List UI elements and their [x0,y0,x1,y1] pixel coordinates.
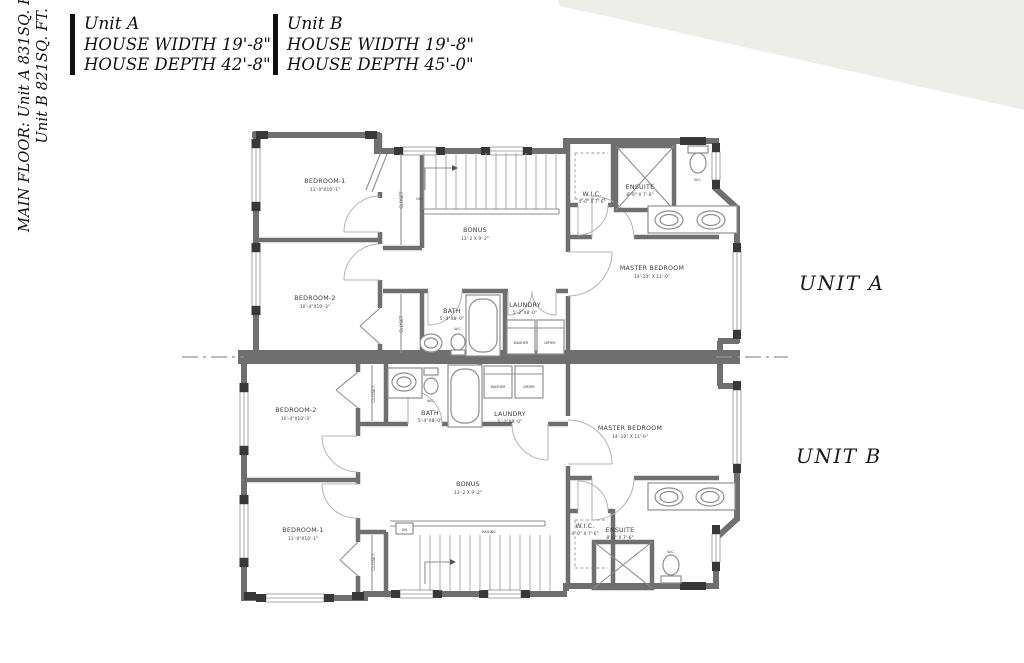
room-label: W.I.C. [575,523,594,530]
room-dims: 11'-0"X10'-1" [310,187,340,193]
room-dims: 5'-2"X8'-0" [513,310,537,316]
room-label: LAUNDRY [494,411,526,418]
room-label: BATH [421,410,439,417]
room-dims: 4'-0" X 7'-6" [571,531,598,537]
room-dims: 4'-0" X 7'-6" [578,199,605,205]
room-dims: 8'-6" X 7'-6" [626,192,653,198]
room-label: ENSUITE [606,527,635,534]
unit-b-stairs: DN RAILING [390,521,550,591]
room-dims: 5'-4"X8'-0" [418,418,442,424]
dryer [537,320,564,354]
room-label: BATH [443,308,461,315]
floorplan-page: { "side_note": { "line1": "MAIN FLOOR: U… [0,0,1024,663]
toilet [690,153,706,173]
toilet-label: W.C. [667,550,675,554]
room-label: MASTER BEDROOM [620,265,684,272]
closet-label: CLOSET [371,553,376,571]
toilet-label: W.C. [694,178,702,182]
washer-label: WASHER [514,341,529,345]
toilet [451,334,465,350]
room-label: LAUNDRY [509,302,541,309]
unit-a-closets: CLOSET CLOSET [360,152,404,353]
unit-b-ensuite-fixtures: W.C. [575,483,735,588]
room-dims: 5'-4"X8'-0" [440,316,464,322]
toilet-label: W.C. [427,399,435,403]
unit-a-stairs: DN [416,153,559,214]
room-label: BONUS [456,481,480,488]
dryer-label: DRYER [544,341,556,345]
dryer [515,366,543,398]
stairs-down-label: DN [402,528,408,532]
scan-shading [558,0,1024,110]
room-label: MASTER BEDROOM [598,425,662,432]
railing-label: RAILING [482,530,496,534]
washer [484,366,512,398]
closet-label: CLOSET [371,385,376,403]
toilet-label: W.C. [454,327,462,331]
room-label: BEDROOM-2 [294,295,335,302]
unit-b-plan: DN RAILING CLOSET CLOSET [240,360,742,602]
room-dims: 13'-2 X 9'-2" [454,490,482,496]
floorplan-drawing: DN CLOSET CLOSET W.C. [0,0,1024,663]
room-label: BEDROOM-1 [282,527,323,534]
dryer-label: DRYER [523,385,535,389]
room-dims: 5'-2"X8'-0" [498,419,522,425]
unit-a-plan: DN CLOSET CLOSET W.C. [252,131,742,356]
washer-label: WASHER [491,385,506,389]
room-label: W.I.C. [582,191,601,198]
toilet [663,555,679,575]
room-label: BONUS [463,227,487,234]
room-dims: 14'-10" X 11'-0" [612,434,648,440]
room-dims: 14'-10" X 11'-0" [634,274,670,280]
room-dims: 11'-0"X10'-1" [288,536,318,542]
unit-b-bath-fixtures: W.C. [388,365,482,427]
unit-a-laundry-fixtures: WASHER DRYER [507,320,564,354]
room-dims: 8'-6" X 7'-6" [606,535,633,541]
stairs-down-label: DN [416,197,422,201]
room-label: BEDROOM-1 [304,178,345,185]
room-dims: 10'-4"X10'-3" [281,416,311,422]
room-dims: 10'-4"X10'-3" [300,304,330,310]
unit-b-laundry-fixtures: WASHER DRYER [484,366,543,398]
room-label: ENSUITE [626,184,655,191]
room-dims: 13'-2 X 9'-2" [461,236,489,242]
closet-label: CLOSET [399,315,404,333]
closet-label: CLOSET [399,191,404,209]
room-label: BEDROOM-2 [275,407,316,414]
toilet [424,378,438,394]
washer [507,320,535,354]
